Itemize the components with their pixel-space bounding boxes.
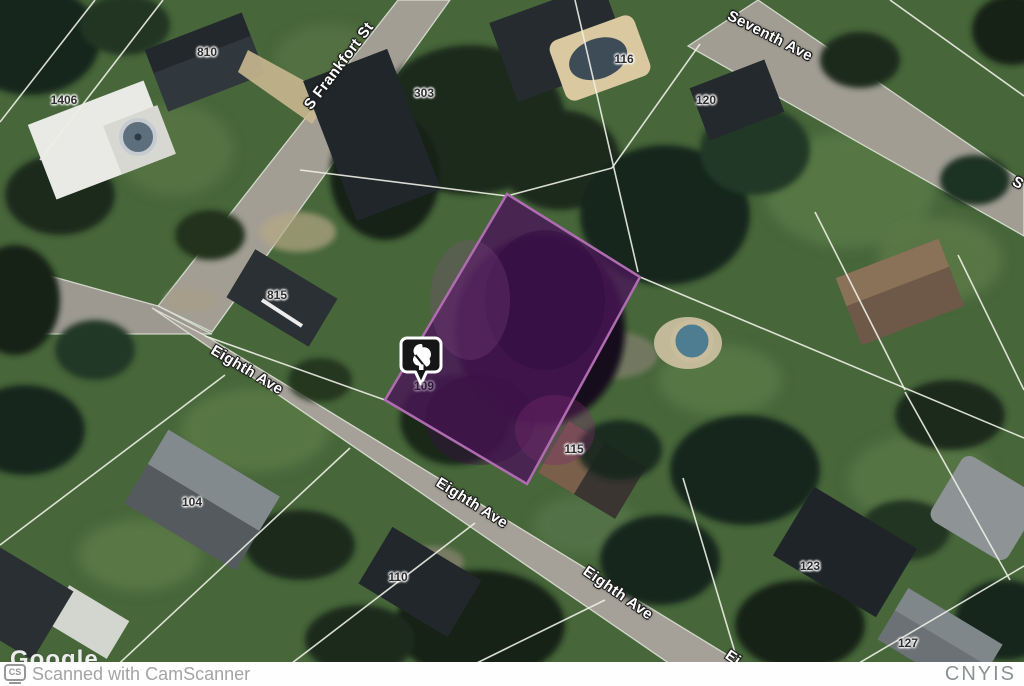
house-number-810: 810 <box>197 45 217 59</box>
cnyis-watermark: CNYIS <box>945 663 1016 686</box>
house-number-815: 815 <box>267 288 287 302</box>
house-number-303: 303 <box>414 86 434 100</box>
pool-right <box>673 322 711 360</box>
house-left-edge <box>0 540 73 660</box>
house-number-116: 116 <box>614 52 633 66</box>
house-number-109-faint: 109 <box>414 379 434 393</box>
house-number-127: 127 <box>898 636 918 650</box>
satellite-imagery <box>0 0 1024 686</box>
house-number-110: 110 <box>388 570 407 584</box>
scanned-map-page: S Frankfort St Seventh Ave Eighth Ave Ei… <box>0 0 1024 686</box>
house-number-120: 120 <box>696 93 716 107</box>
house-number-123: 123 <box>800 559 820 573</box>
camscanner-text: Scanned with CamScanner <box>32 664 250 685</box>
house-number-1406: 1406 <box>51 93 78 107</box>
camscanner-footer: CS Scanned with CamScanner CNYIS <box>0 662 1024 686</box>
house-number-104: 104 <box>182 495 202 509</box>
house-number-115: 115 <box>564 442 583 456</box>
camscanner-logo-icon: CS <box>4 664 26 684</box>
